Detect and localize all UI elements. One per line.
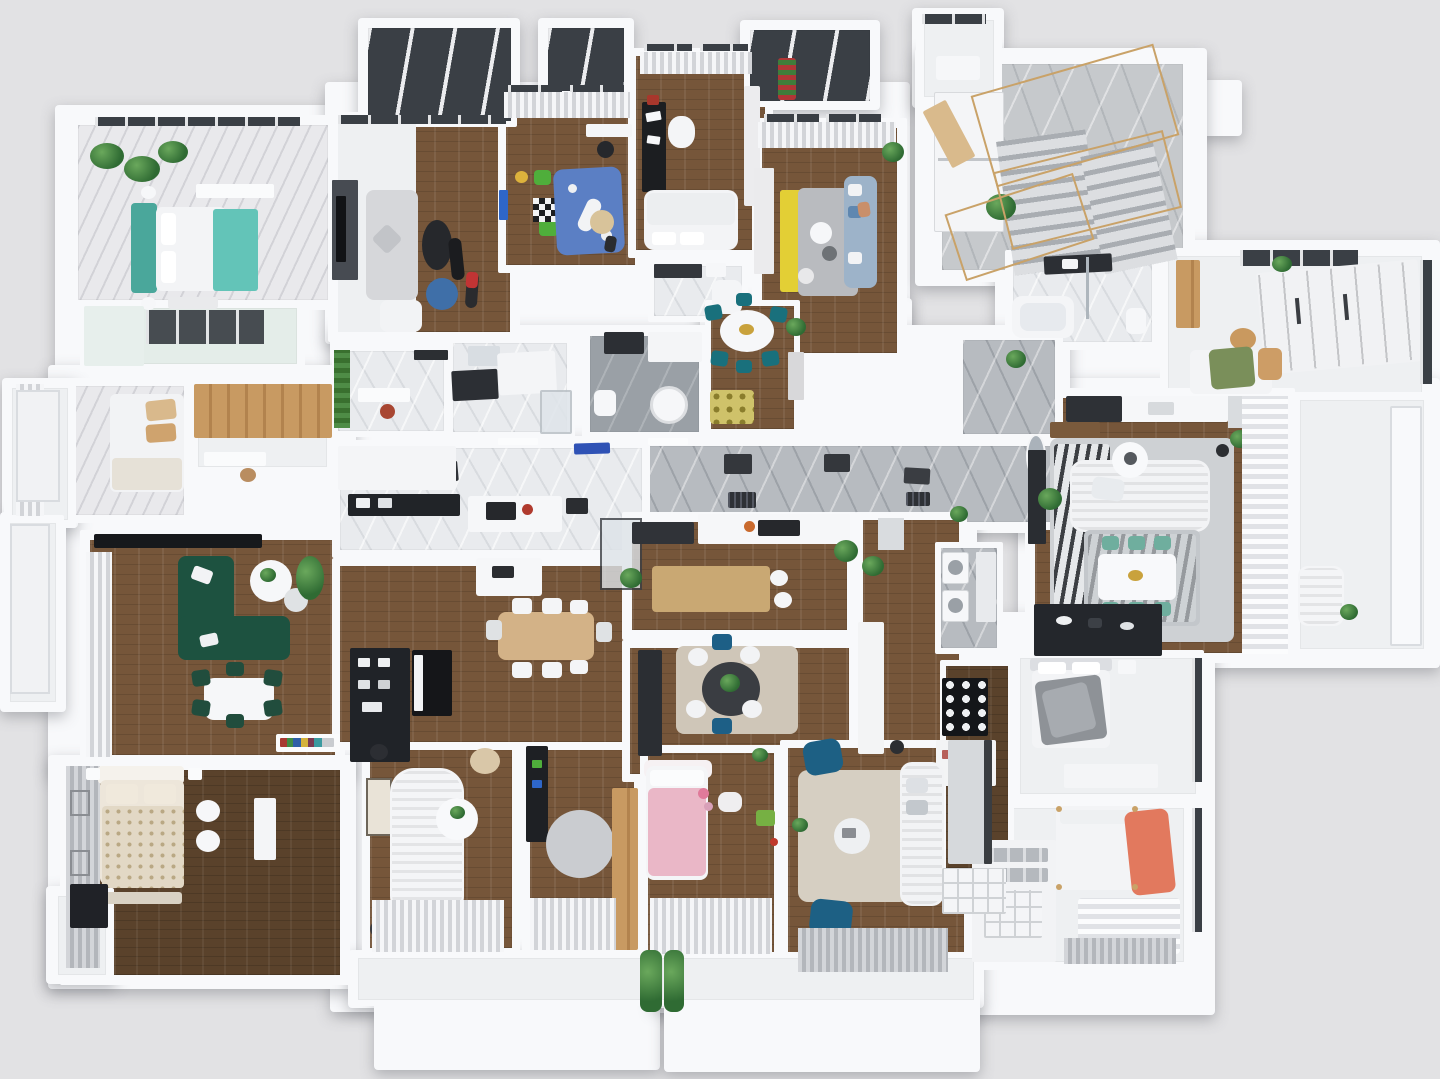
classic-tv — [70, 884, 108, 928]
right-balcony-plant — [1340, 604, 1358, 620]
center-tv-cabinet — [638, 650, 662, 756]
coral-bedpost-4 — [1132, 884, 1138, 890]
master-balcony-glass — [146, 310, 264, 344]
right-unit-console — [1050, 422, 1100, 438]
tr-bath-sink — [1062, 259, 1078, 269]
master-headboard — [131, 203, 157, 293]
tr-bedroom-plant — [1272, 256, 1292, 272]
balcony-plant-column-2 — [664, 950, 684, 1012]
sofa-room-lamp — [370, 744, 388, 760]
pink-room-pillow — [650, 770, 704, 786]
green-living-curtain — [86, 552, 112, 757]
pink-room-duvet — [648, 788, 706, 876]
right-coffee-tray — [1124, 452, 1137, 465]
rug-room-curtain — [530, 898, 616, 950]
br-kitchen-stove — [942, 678, 988, 736]
study-nook-shelf — [414, 350, 448, 360]
yellow-living-window-2 — [826, 114, 881, 122]
cl-gallery-dish-5 — [362, 702, 382, 712]
master-stool-1 — [141, 186, 156, 199]
center-living-armchair-1 — [801, 737, 844, 777]
study-nook-plant-wall — [334, 350, 350, 428]
right-balcony-lounge-stripes — [1300, 568, 1342, 624]
yellow-living-window-1 — [764, 114, 819, 122]
left-balcony-window-2 — [10, 524, 50, 694]
right-dark-kitchen — [1034, 604, 1162, 656]
cl-kitchen-microwave — [566, 498, 588, 514]
yellow-living-pouf — [798, 268, 814, 284]
floor-plan-3d-render — [0, 0, 1440, 1079]
cl-kitchen-appliance-2 — [378, 498, 392, 508]
room-corridor-connector — [955, 332, 1063, 442]
right-dining-chair-2 — [1128, 536, 1145, 550]
green-living-plant-1 — [260, 568, 276, 582]
dining-nook-chair-4 — [761, 350, 780, 367]
closet-hall-wardrobe — [194, 384, 332, 438]
tr-bedroom-wicker-pillow — [1258, 348, 1282, 380]
cl-dining-chair-5 — [542, 662, 562, 678]
dining-nook-chair-6 — [736, 360, 752, 373]
master-window — [95, 117, 300, 126]
cl-dining-chair-2 — [542, 598, 562, 614]
pink-room-curtain — [650, 898, 772, 954]
master-plant-2 — [124, 156, 160, 182]
dining-nook-dotted-rug — [710, 390, 754, 424]
office-bath-vanity — [654, 264, 702, 278]
tr-wardrobe-door-lines — [1258, 261, 1424, 372]
yellow-living-table-2 — [822, 246, 837, 261]
cl-gallery-dish-4 — [378, 680, 390, 689]
pink-room-doll-1 — [698, 788, 709, 799]
dining-nook-chair-2 — [769, 306, 788, 324]
yellow-sofa-pillow-1 — [848, 184, 862, 196]
classic-pillow-2 — [144, 784, 176, 804]
dining-nook-chair-1 — [704, 304, 723, 322]
corridor-door-1 — [498, 438, 538, 445]
sofa-room-shell-pouf — [470, 748, 500, 774]
office-window-1 — [644, 44, 692, 51]
cl-kitchen-cabinets — [338, 446, 456, 490]
center-dining-chair-w3 — [686, 700, 706, 718]
cl-dining-chair-end-1 — [486, 620, 502, 640]
connector-plant — [1006, 350, 1026, 368]
coral-bedpost-1 — [1056, 806, 1062, 812]
study-nook-desk — [358, 388, 410, 402]
dining-nook-chair-5 — [736, 293, 752, 306]
pink-room-toybox — [756, 810, 775, 826]
corridor-door-2 — [648, 438, 688, 445]
right-kitchen-plate-1 — [1056, 616, 1072, 625]
kids-rug-dot-1 — [568, 184, 577, 193]
left-balcony-window-1 — [16, 390, 60, 502]
center-dining-chair-b2 — [712, 718, 732, 734]
green-dining-chair-6 — [226, 714, 244, 728]
pink-room-chair — [718, 792, 742, 812]
utility-washer-door-2 — [948, 598, 963, 613]
tr-bath-toilet — [1126, 308, 1146, 334]
dining-nook-plant — [786, 318, 806, 336]
utility-washer-door-1 — [948, 560, 963, 575]
tr-hall-console — [1176, 260, 1200, 328]
center-living-books — [842, 828, 856, 838]
balcony-plant-column-1 — [640, 950, 662, 1012]
cl-gallery-dish-1 — [358, 658, 370, 667]
cl-kitchen-cooktop — [486, 502, 516, 520]
gray-bedroom-pillow-2 — [1072, 662, 1100, 674]
cl-gallery-dish-2 — [378, 658, 390, 667]
corridor-mat-2 — [824, 454, 850, 472]
master-plant-1 — [90, 143, 124, 169]
tr-bath-glass — [1086, 257, 1089, 319]
classic-nightstand-2 — [188, 768, 202, 780]
office-red-object — [647, 95, 659, 105]
green-dining-chair-1 — [191, 669, 211, 687]
corridor-blue-mat — [574, 442, 610, 454]
bath-b-mirror — [604, 332, 644, 354]
right-sofa-cushion — [1091, 476, 1126, 502]
office-curtain — [640, 52, 752, 74]
office-egg-chair — [668, 116, 695, 148]
center-living-curtain — [798, 928, 948, 972]
cl-kitchen-pot — [522, 504, 533, 515]
gray-living-armchair — [380, 300, 422, 332]
sofa-room-plant — [450, 806, 465, 819]
gray-bedroom-shelf — [1064, 764, 1158, 788]
center-kitchen-cooktop — [758, 520, 800, 536]
center-kitchen-pot — [744, 521, 755, 532]
rug-room-item-blue — [532, 780, 542, 788]
sofa-room-art-frame — [366, 778, 392, 836]
dining-nook-bowl — [739, 324, 754, 335]
kids-desk-chair — [597, 141, 614, 158]
right-dining-chair-3 — [1154, 536, 1171, 550]
center-living-plant — [792, 818, 808, 832]
cl-island-sink — [492, 566, 514, 578]
master-shelf — [196, 184, 274, 198]
kids-toy-yellow — [515, 171, 528, 183]
coral-bedpost-2 — [1132, 806, 1138, 812]
yellow-living-plant — [882, 142, 904, 162]
center-bar-stool-1 — [770, 570, 788, 586]
room-bottom-balcony-left — [352, 952, 654, 1006]
green-dining-chair-5 — [226, 662, 244, 676]
small-bedroom-pillow-1 — [145, 398, 177, 421]
cl-dining-chair-4 — [512, 662, 532, 678]
sofa-room-sofa-stripes — [392, 770, 462, 918]
center-living-pillow-1 — [906, 778, 928, 793]
room-balcony-glass-1 — [362, 22, 517, 127]
cl-dining-chair-3 — [570, 600, 588, 614]
coral-window — [1192, 808, 1202, 932]
gray-bedroom-nightstand — [1118, 660, 1136, 674]
kids-curtain — [504, 92, 630, 118]
br-kitchen-counter-edge — [984, 740, 992, 864]
dining-nook-cabinet — [788, 352, 804, 400]
green-living-tv-band — [94, 534, 262, 548]
corridor-plant-2 — [950, 506, 968, 522]
figure-woman-red-top — [465, 272, 478, 289]
tr-bedroom-green-blanket — [1208, 346, 1255, 390]
right-balcony-curtain — [1242, 396, 1288, 654]
office-bath-sink — [706, 263, 726, 277]
right-kitchen-plate-2 — [1120, 622, 1134, 630]
coral-throw — [1124, 808, 1177, 896]
gray-living-blue-rug — [426, 278, 458, 310]
pink-room-plant — [752, 748, 768, 762]
cl-dining-chair-6 — [570, 660, 588, 674]
pink-room-red-toy — [770, 838, 778, 846]
cl-kitchen-appliance-1 — [356, 498, 370, 508]
yellow-living-table-1 — [810, 222, 832, 244]
center-dining-chair-b1 — [712, 634, 732, 650]
gray-living-window — [338, 115, 506, 124]
rug-room-round-rug — [546, 810, 614, 878]
slab-bottom-balcony-right-tab — [664, 1000, 980, 1072]
bath-a-shower — [540, 390, 572, 434]
center-dining-chair-w2 — [740, 646, 760, 664]
white-balcony-table — [936, 56, 980, 80]
classic-pillow-1 — [106, 784, 138, 804]
bath-b-round-tub — [650, 386, 688, 424]
right-kitchen-counter-dark — [1066, 396, 1122, 422]
classic-nightstand-1 — [86, 768, 100, 780]
green-sofa-horizontal — [178, 616, 290, 660]
right-balcony-door — [1390, 406, 1422, 646]
closet-hall-stool — [240, 468, 256, 482]
master-pillow-2 — [161, 251, 176, 283]
office-bed-duvet — [647, 193, 735, 225]
hall-cabinet — [858, 622, 884, 754]
classic-wall-frame-2 — [70, 850, 90, 876]
gray-living-tv — [336, 196, 346, 262]
closet-hall-console — [204, 452, 266, 466]
cl-piano-keys — [414, 655, 423, 711]
bath-a-counter — [497, 351, 557, 396]
bath-a-mirror — [468, 346, 500, 366]
kids-desk — [586, 124, 632, 137]
small-bedroom-pillow-2 — [145, 423, 176, 443]
classic-wall-frame-1 — [70, 790, 90, 816]
classic-armchair-2 — [196, 830, 220, 852]
master-plant-3 — [158, 141, 188, 163]
green-living-plant-2 — [296, 556, 324, 600]
classic-armchair-1 — [196, 800, 220, 822]
tr-bath-tub-inner — [1020, 303, 1066, 331]
master-teal-throw — [213, 209, 258, 291]
office-paper-2 — [647, 135, 661, 145]
gray-bedroom-pillow-1 — [1038, 662, 1066, 674]
kids-straw-hat — [590, 210, 614, 234]
right-dining-chair-1 — [1102, 536, 1119, 550]
classic-duvet — [102, 806, 184, 888]
green-dining-chair-4 — [263, 699, 283, 717]
yellow-living-wardrobe — [754, 168, 774, 274]
master-bench — [168, 297, 218, 309]
classic-dresser — [254, 798, 276, 860]
green-dining-chair-2 — [191, 699, 211, 717]
cl-dining-chair-1 — [512, 598, 532, 614]
center-living-pillow-2 — [906, 800, 928, 815]
tr-bath-vanity — [1044, 253, 1113, 275]
corridor-mat-3 — [904, 467, 931, 484]
kids-green-chair-1 — [534, 170, 551, 185]
cl-living-plant — [620, 568, 642, 588]
white-balcony-window — [922, 14, 986, 24]
study-nook-red-chair — [380, 404, 395, 419]
rug-room-item-green — [532, 760, 542, 768]
office-bed-pillow-2 — [680, 232, 704, 245]
center-dining-plant — [720, 674, 740, 692]
center-dining-chair-w1 — [688, 648, 708, 666]
corridor-radiator-1 — [728, 492, 756, 508]
center-bar-stool-2 — [774, 592, 792, 608]
dining-nook-chair-3 — [710, 350, 729, 367]
right-kitchen-sink — [1148, 402, 1174, 415]
tr-bedroom-window — [1420, 260, 1432, 384]
center-kitchen-bar — [652, 566, 770, 612]
room-balcony-glass-3 — [744, 24, 876, 107]
green-dining-chair-3 — [263, 669, 283, 687]
small-bedroom-blanket — [112, 458, 182, 490]
br-kitchen-storage — [942, 868, 1006, 914]
utility-shelf — [976, 552, 996, 622]
hall-plant — [862, 556, 884, 576]
sofa-room-curtain — [372, 900, 504, 952]
cl-gallery-dish-3 — [358, 680, 370, 689]
kids-wall-art — [499, 190, 508, 220]
kids-window-1 — [508, 85, 562, 92]
center-kitchen-dark-cab — [632, 522, 694, 544]
bath-b-vanity — [648, 332, 702, 362]
green-living-books — [280, 738, 334, 747]
yellow-sofa-pillow-3 — [848, 252, 862, 264]
center-living-lamp — [890, 740, 904, 754]
balcony-flowers-top — [778, 58, 796, 100]
yellow-living-curtain — [758, 122, 896, 148]
center-kitchen-plant — [834, 540, 858, 562]
classic-foot-bench — [104, 892, 182, 904]
right-kitchen-pot — [1088, 618, 1102, 628]
tr-bedroom-skylight — [1240, 250, 1358, 266]
corridor-plant-1 — [1038, 488, 1062, 510]
hall-grid-panel — [878, 518, 904, 550]
bath-a-vanity — [451, 369, 499, 401]
cl-dining-chair-end-2 — [596, 622, 612, 642]
right-dining-bowl — [1128, 570, 1143, 581]
kids-checker-rug — [533, 198, 557, 222]
master-balcony-cabinet — [84, 306, 144, 366]
slab-bottom-balcony-left-tab — [374, 1000, 660, 1070]
coral-bedpost-3 — [1056, 884, 1062, 890]
cl-dining-table — [498, 612, 594, 660]
bath-b-toilet — [594, 390, 616, 416]
kids-window-2 — [570, 85, 624, 92]
corridor-radiator-2 — [906, 492, 930, 506]
coral-curtain — [1064, 938, 1176, 964]
yellow-living-figure — [857, 201, 871, 218]
pink-room-doll-2 — [704, 802, 713, 811]
right-floor-lamp — [1216, 444, 1229, 457]
corridor-mat-1 — [724, 454, 752, 474]
office-window-2 — [700, 44, 748, 51]
sofa-room-round-table — [436, 798, 478, 840]
center-dining-chair-w4 — [742, 700, 762, 718]
master-pillow-1 — [161, 213, 176, 245]
coral-bed-pillow — [1060, 810, 1130, 824]
gray-bedroom-window — [1192, 658, 1202, 782]
office-bed-pillow-1 — [652, 232, 676, 245]
